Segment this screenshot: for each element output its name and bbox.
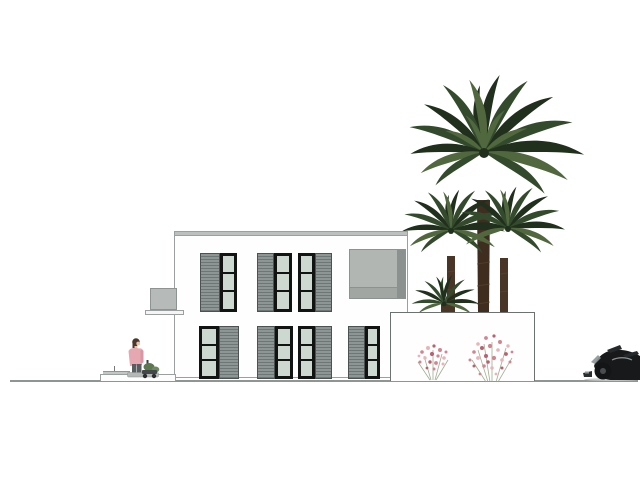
scooter-wheel [143, 374, 147, 378]
motorcycle [583, 345, 640, 381]
scooter-chassis [142, 370, 157, 374]
motorcycle-hub [600, 368, 606, 374]
elevation-drawing [0, 0, 640, 480]
person-face [136, 342, 140, 346]
flower-blooms [418, 344, 448, 370]
person-arm [141, 350, 144, 363]
person-leg [137, 364, 142, 373]
person-figure [129, 338, 144, 374]
flower-shrub-left [418, 344, 448, 380]
foreground-figures [0, 0, 640, 480]
flower-shrub-right [469, 334, 514, 382]
flower-blooms [469, 334, 514, 375]
flower-stems [472, 342, 512, 382]
scooter-wheel [152, 374, 156, 378]
motorcycle-mirror-glass [585, 372, 589, 374]
